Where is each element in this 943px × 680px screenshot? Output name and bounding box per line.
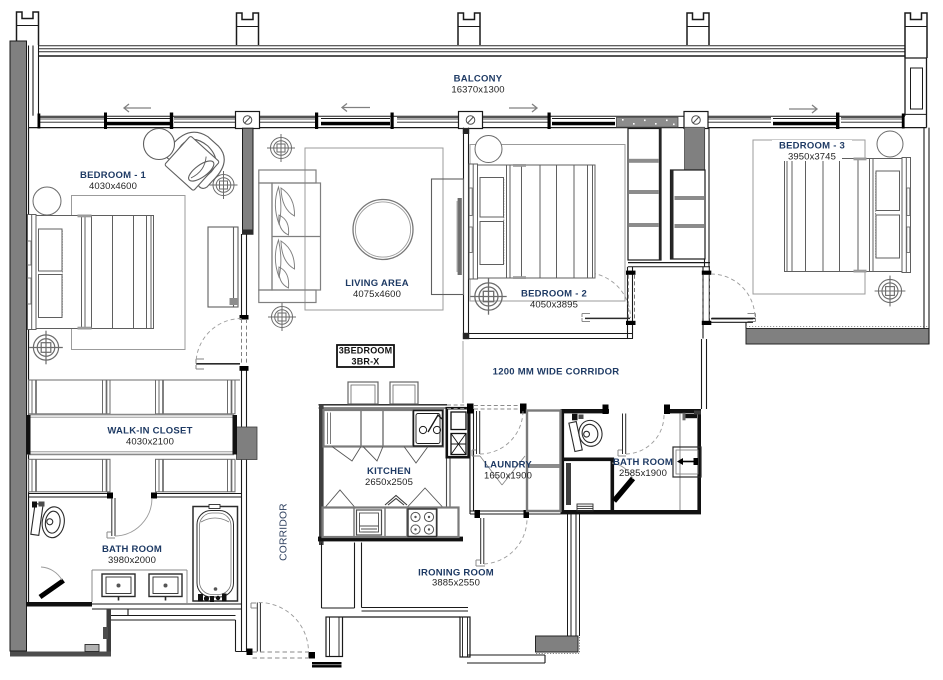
- svg-text:LAUNDRY: LAUNDRY: [484, 460, 532, 471]
- svg-text:2585x1900: 2585x1900: [619, 468, 667, 479]
- svg-text:BEDROOM - 1: BEDROOM - 1: [80, 170, 147, 181]
- svg-text:16370x1300: 16370x1300: [451, 85, 504, 96]
- svg-text:3BR-X: 3BR-X: [351, 357, 379, 367]
- svg-text:BATH ROOM: BATH ROOM: [102, 544, 162, 555]
- svg-text:BEDROOM - 2: BEDROOM - 2: [521, 289, 587, 300]
- svg-text:4030x4600: 4030x4600: [89, 181, 137, 192]
- svg-text:3950x3745: 3950x3745: [788, 152, 836, 163]
- svg-text:KITCHEN: KITCHEN: [367, 466, 411, 477]
- svg-text:LIVING AREA: LIVING AREA: [345, 278, 409, 289]
- svg-text:1200 MM WIDE CORRIDOR: 1200 MM WIDE CORRIDOR: [493, 367, 620, 378]
- svg-text:2650x2505: 2650x2505: [365, 477, 413, 488]
- svg-text:BATH ROOM: BATH ROOM: [613, 457, 673, 468]
- svg-text:4050x3895: 4050x3895: [530, 300, 578, 311]
- svg-text:BALCONY: BALCONY: [454, 74, 503, 85]
- svg-text:3980x2000: 3980x2000: [108, 555, 156, 566]
- svg-text:3BEDROOM: 3BEDROOM: [339, 346, 393, 356]
- svg-text:BEDROOM - 3: BEDROOM - 3: [779, 141, 845, 152]
- svg-text:1650x1900: 1650x1900: [484, 471, 532, 482]
- svg-text:3885x2550: 3885x2550: [432, 578, 480, 589]
- svg-text:4030x2100: 4030x2100: [126, 437, 174, 448]
- svg-text:4075x4600: 4075x4600: [353, 289, 401, 300]
- svg-text:WALK-IN CLOSET: WALK-IN CLOSET: [107, 426, 192, 437]
- svg-text:CORRIDOR: CORRIDOR: [279, 503, 290, 561]
